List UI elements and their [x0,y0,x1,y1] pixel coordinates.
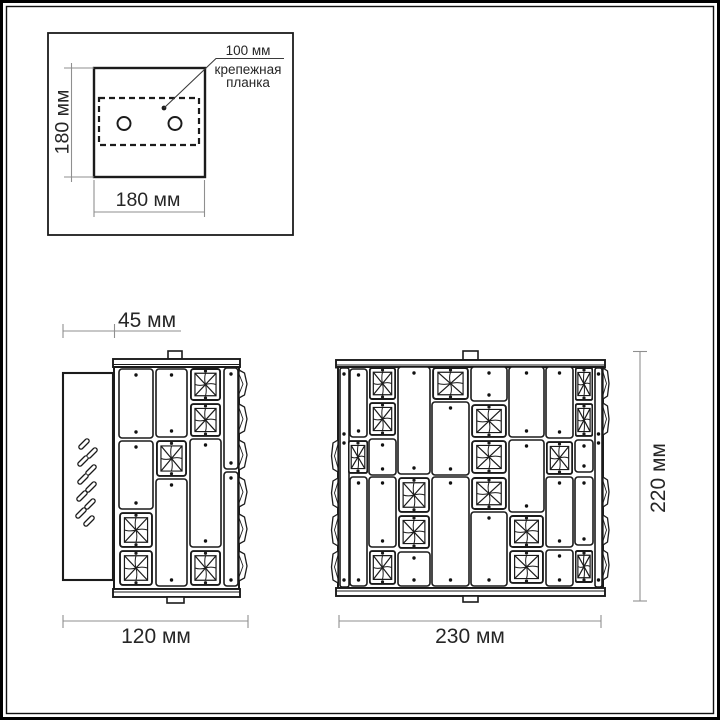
top-plate [113,359,240,367]
top-tab [463,351,478,360]
inset-height-label: 180 мм [52,90,74,155]
bottom-tab [463,596,478,602]
mounting-hole-right [169,117,182,130]
mounting-hole-left [118,117,131,130]
mounting-plate-inset: 100 мм крепежная планка 180 мм 180 мм [48,33,293,235]
drawing-svg: 100 мм крепежная планка 180 мм 180 мм [0,0,720,720]
side-depth-label: 45 мм [118,309,176,332]
top-tab [168,351,182,359]
bracket-label-line2: планка [226,75,270,90]
hole-pitch-label: 100 мм [226,43,271,58]
bottom-plate [113,589,240,597]
bottom-tab [167,597,184,603]
side-width-label: 120 мм [121,625,191,648]
front-height-label: 220 мм [647,443,670,513]
front-width-label: 230 мм [435,625,505,648]
dimension-drawing-canvas: 100 мм крепежная планка 180 мм 180 мм [0,0,720,720]
inset-width-label: 180 мм [116,189,181,211]
bottom-plate [336,588,605,596]
